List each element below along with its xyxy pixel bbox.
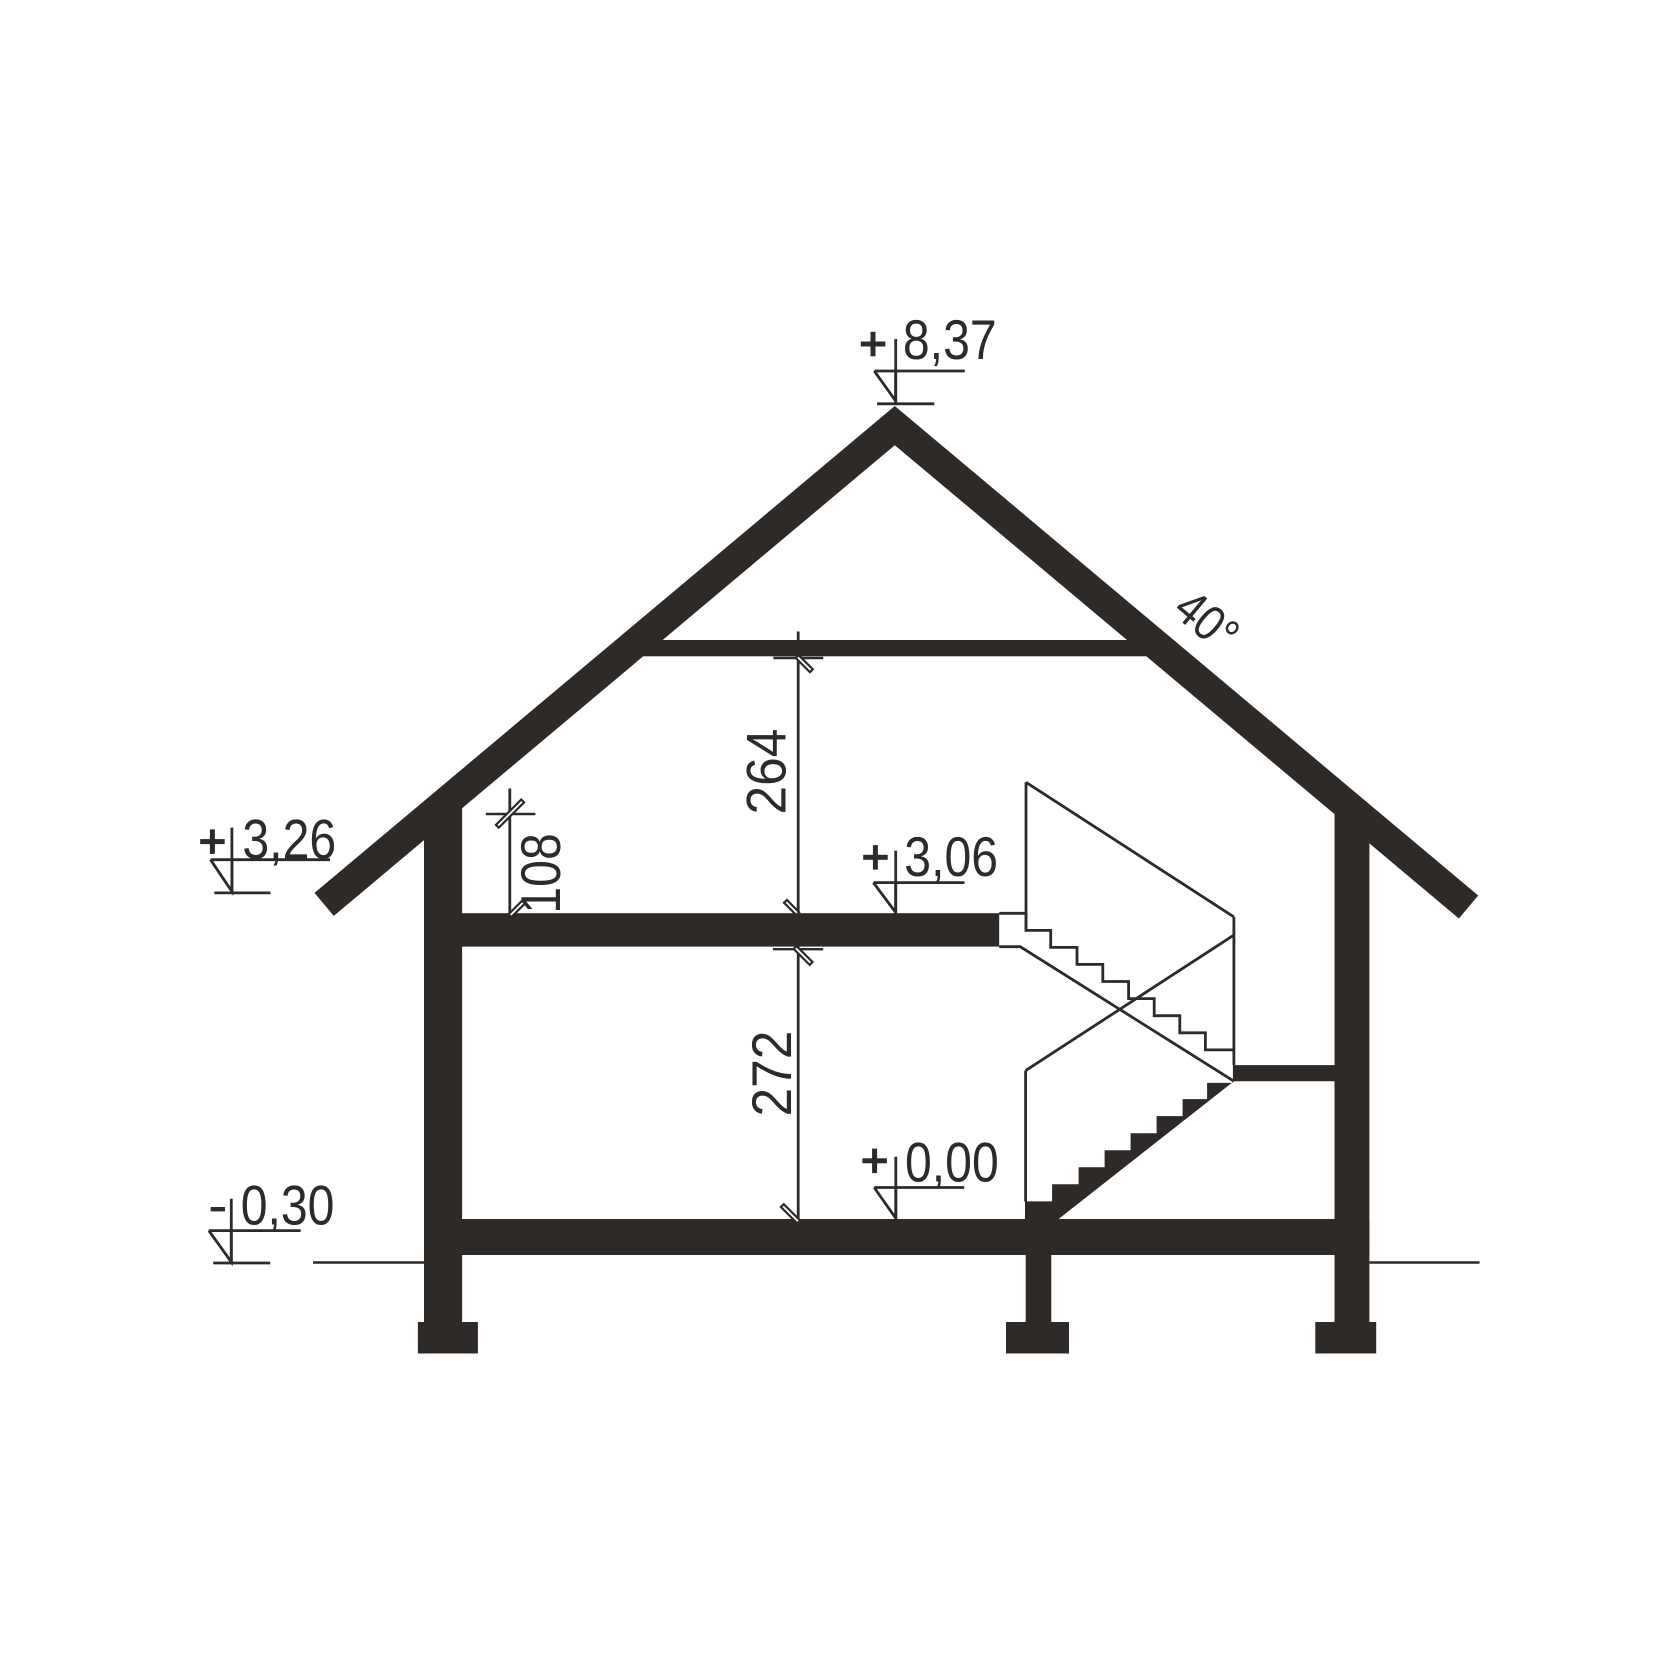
svg-text:272: 272 [740,1031,803,1117]
svg-text:0,30: 0,30 [241,1174,335,1237]
svg-text:8,37: 8,37 [903,308,997,371]
svg-text:108: 108 [509,833,572,913]
svg-text:0,00: 0,00 [905,1131,999,1194]
svg-text:264: 264 [735,729,798,815]
svg-text:3,06: 3,06 [904,825,998,888]
svg-text:3,26: 3,26 [242,808,336,871]
